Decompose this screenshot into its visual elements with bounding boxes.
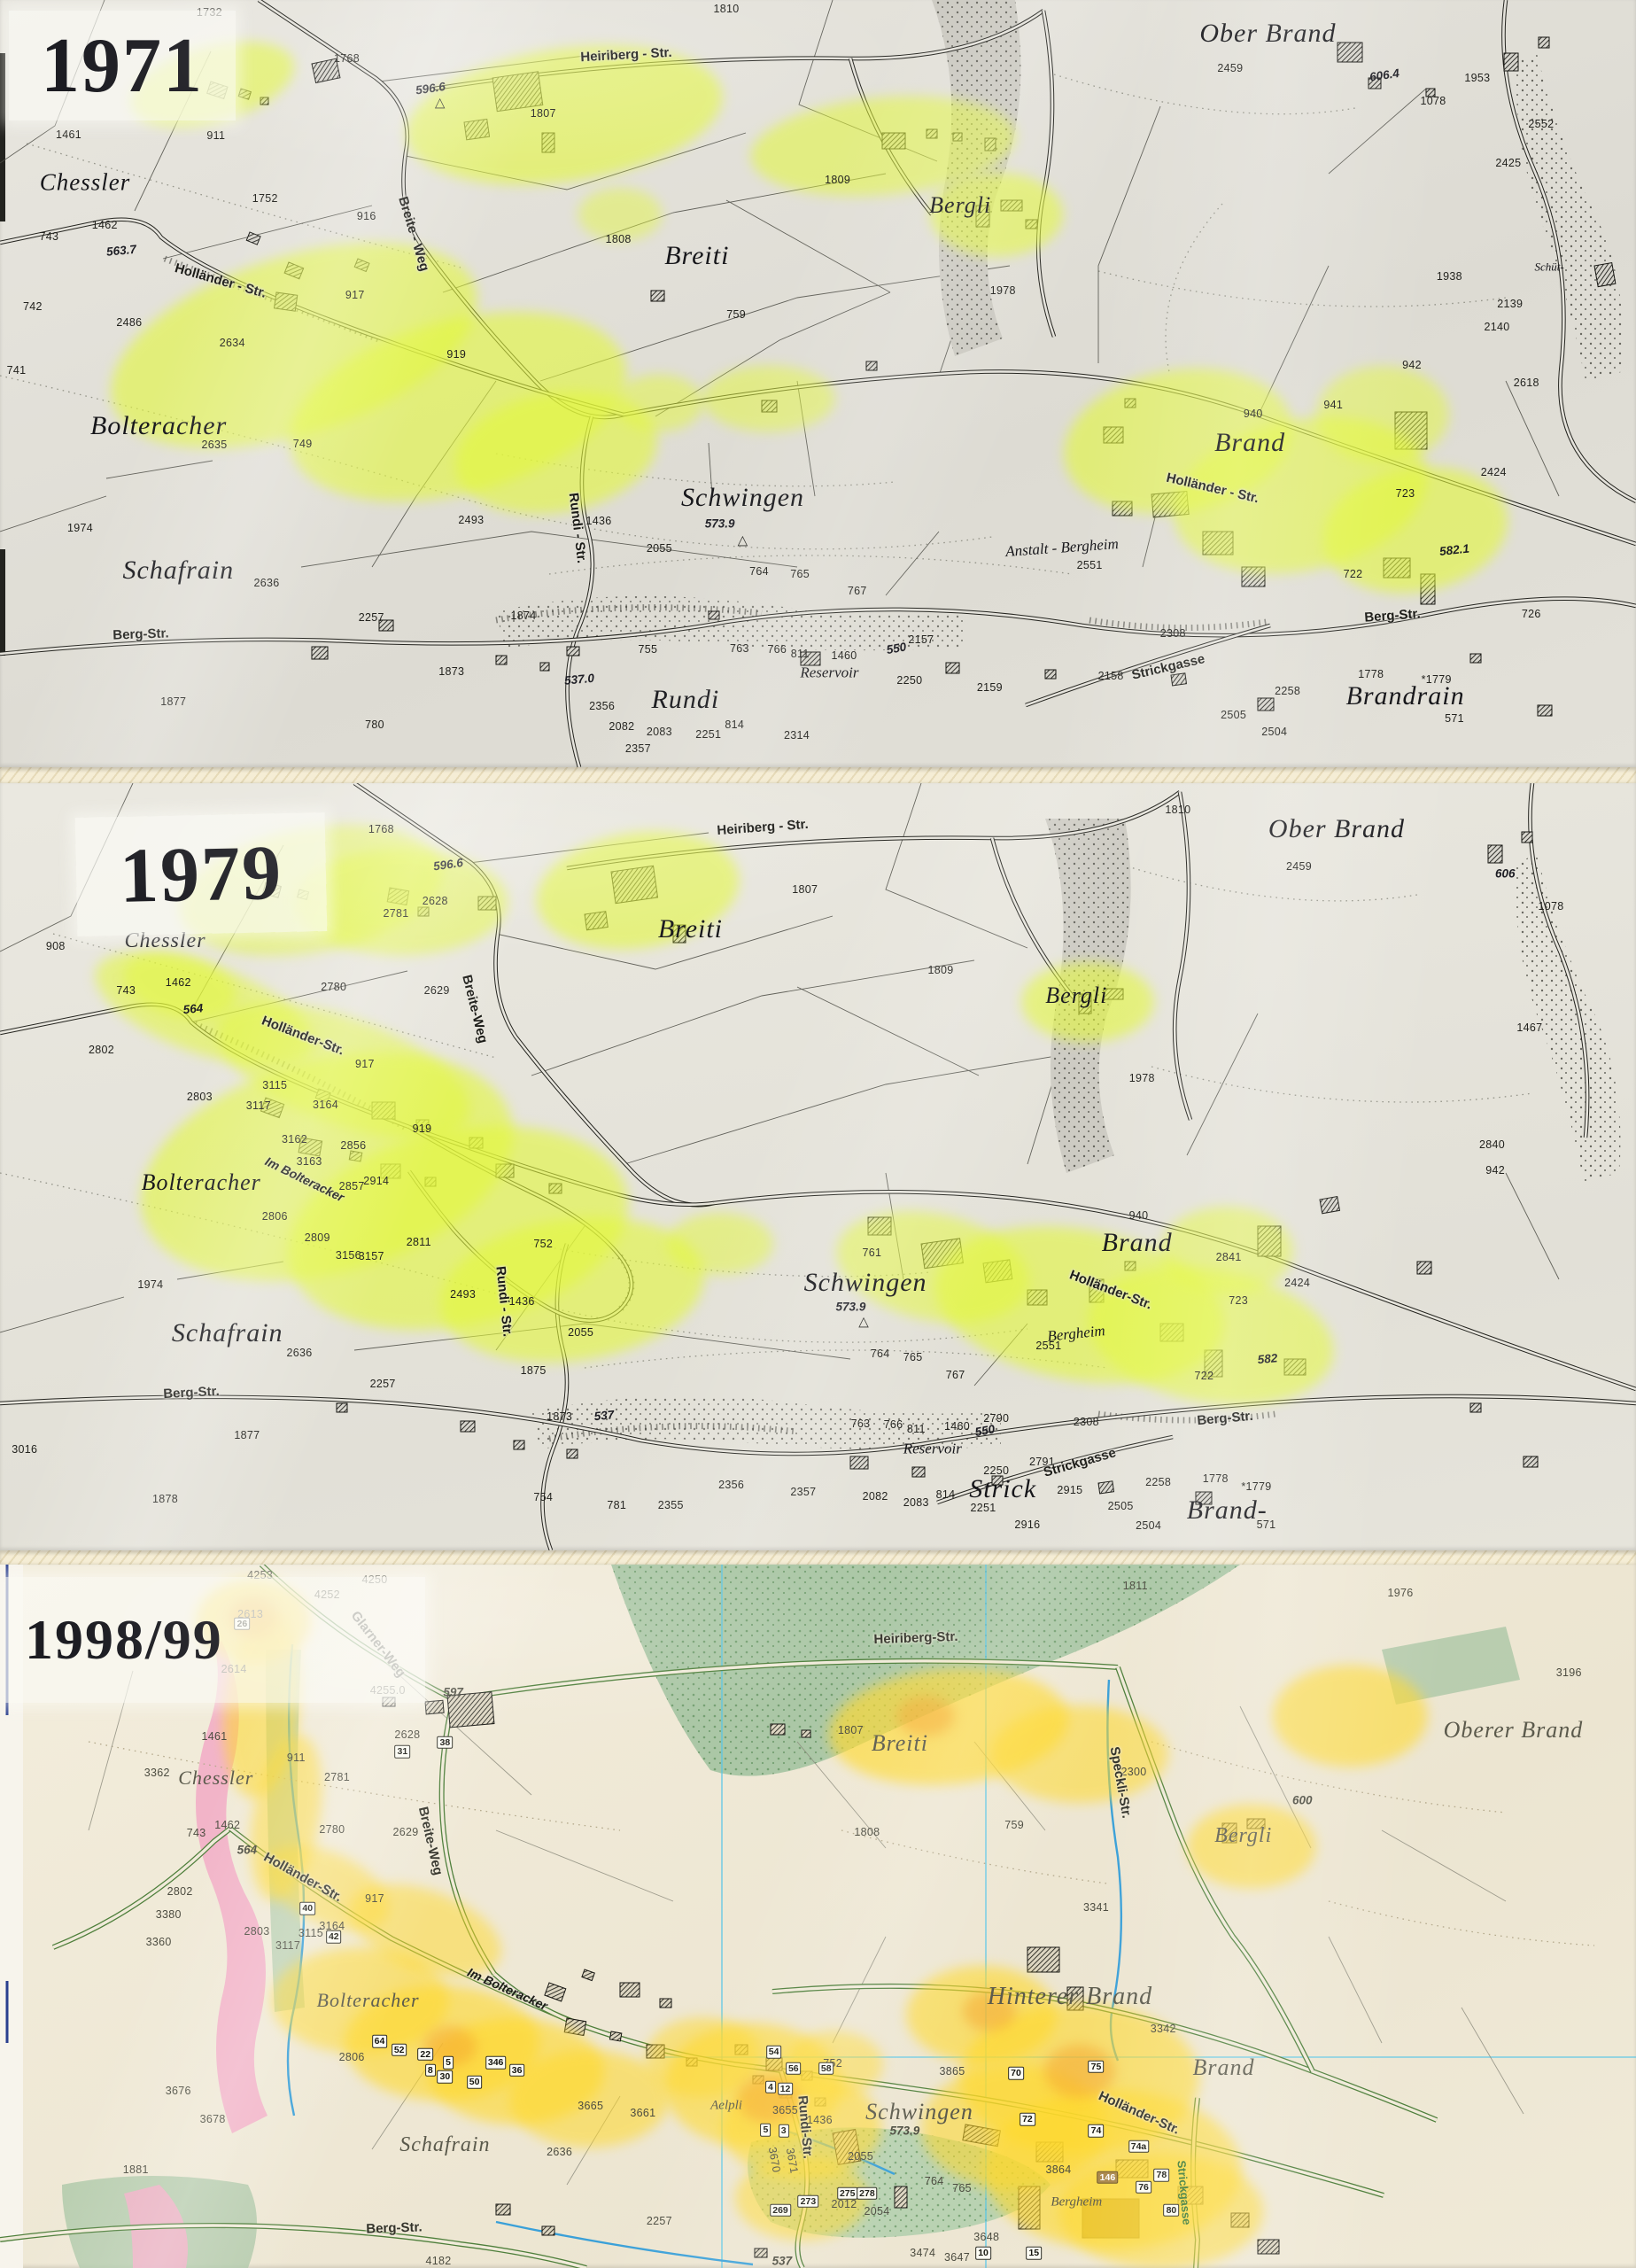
map-label: Im Bolteracker <box>465 1966 549 2012</box>
map-label: 917 <box>345 290 365 301</box>
map-label: 3865 <box>939 2065 965 2077</box>
map-label: Heiriberg-Str. <box>874 1630 958 1646</box>
map-label: 596.6 <box>432 857 463 873</box>
map-label: 2790 <box>983 1413 1009 1425</box>
map-label: 346 <box>485 2056 507 2070</box>
map-label: Brand- <box>1187 1497 1268 1524</box>
map-label: 1752 <box>252 193 278 205</box>
map-label: 3362 <box>144 1767 170 1779</box>
map-label: Aelpli <box>710 2099 742 2112</box>
map-label: 726 <box>1522 609 1541 620</box>
map-label: 2636 <box>547 2147 572 2158</box>
map-label: 15 <box>1026 2247 1042 2260</box>
map-label: 2054 <box>864 2206 889 2218</box>
map-label: 2356 <box>718 1480 744 1491</box>
map-label: 1461 <box>201 1730 227 1742</box>
map-label: 573.9 <box>889 2124 919 2137</box>
map-label: 8 <box>425 2064 436 2078</box>
map-label: 2055 <box>647 543 672 555</box>
map-label: 917 <box>365 1893 384 1905</box>
map-label: 1768 <box>368 824 394 835</box>
map-label: 941 <box>1323 400 1343 411</box>
map-label: 917 <box>355 1059 375 1070</box>
map-label: 2082 <box>609 721 634 733</box>
map-label: Bergli <box>929 194 991 217</box>
map-label: 1877 <box>234 1430 260 1441</box>
map-label: 2552 <box>1528 119 1554 130</box>
map-label: 2628 <box>423 896 448 907</box>
map-label: 2493 <box>458 515 484 526</box>
map-label: 1874 <box>511 610 537 622</box>
map-label: 573.9 <box>705 518 735 531</box>
map-label: 5 <box>760 2124 771 2137</box>
map-label: Holländer-Str. <box>261 1851 344 1905</box>
map-label: 3162 <box>282 1134 307 1146</box>
map-label: 942 <box>1485 1165 1505 1177</box>
map-label: 781 <box>607 1500 626 1511</box>
map-label: 4 <box>765 2081 776 2094</box>
map-label: 3474 <box>910 2248 935 2259</box>
map-label: 764 <box>925 2175 944 2186</box>
map-label: 1808 <box>606 234 632 245</box>
map-label: 2629 <box>424 985 450 997</box>
map-label: Bolteracher <box>142 1171 261 1194</box>
map-label: 2636 <box>286 1348 312 1359</box>
map-label: 2802 <box>167 1886 193 1898</box>
map-label: Breiti <box>872 1732 928 1755</box>
map-label: 765 <box>903 1352 923 1363</box>
map-label: 1778 <box>1358 669 1384 680</box>
map-label: 3117 <box>275 1939 300 1951</box>
map-label: 2486 <box>116 316 142 328</box>
map-label: 571 <box>1445 712 1464 724</box>
map-label: 56 <box>786 2062 802 2075</box>
map-label: 3380 <box>156 1909 182 1921</box>
map-label: Hinterer Brand <box>988 1984 1152 2009</box>
map-label: Berg-Str. <box>366 2220 423 2235</box>
map-label: 2809 <box>305 1231 330 1243</box>
map-label: *1779 <box>1241 1481 1271 1493</box>
map-label: Anstalt - Bergheim <box>1004 536 1119 559</box>
map-label: 58 <box>818 2062 834 2075</box>
map-label: 537 <box>593 1410 615 1423</box>
map-label: 1810 <box>1165 804 1190 816</box>
map-label: 3661 <box>630 2108 655 2119</box>
year-label-1971: 1971 <box>9 11 236 120</box>
map-label: 78 <box>1154 2169 1170 2182</box>
map-label: 550 <box>974 1423 996 1438</box>
map-label: 278 <box>857 2187 878 2201</box>
map-label: 22 <box>417 2047 433 2061</box>
map-label: 2629 <box>393 1826 419 1837</box>
map-label: 767 <box>946 1369 965 1380</box>
map-label: 74a <box>1128 2140 1150 2153</box>
map-label: Brandrain <box>1346 683 1465 710</box>
map-label: 1873 <box>547 1411 572 1423</box>
map-label: 2802 <box>89 1045 114 1056</box>
map-label: Breiti <box>664 243 729 269</box>
map-label: Brand <box>1102 1230 1173 1256</box>
map-label: 50 <box>467 2076 483 2089</box>
map-label: 759 <box>726 309 746 321</box>
map-label: 1976 <box>1388 1588 1414 1599</box>
map-label: 74 <box>1089 2124 1105 2138</box>
map-label: Holländer - Str. <box>1165 470 1260 505</box>
map-label: 2055 <box>568 1327 593 1339</box>
map-label: 1462 <box>92 219 118 230</box>
map-label: 2916 <box>1014 1519 1040 1531</box>
map-label: 743 <box>116 985 136 997</box>
map-label: 564 <box>237 1844 258 1856</box>
map-label: 3360 <box>146 1937 172 1948</box>
map-label: Speckli-Str. <box>1108 1746 1134 1820</box>
map-label: 1810 <box>714 4 740 15</box>
map-label: 2780 <box>319 1823 345 1835</box>
map-panel-1998-99: 4253425042522613262614Glarner-Weg4255.05… <box>0 1565 1636 2268</box>
map-label: 811 <box>907 1424 926 1435</box>
map-label: 600 <box>1292 1794 1313 1806</box>
map-label: Chessler <box>40 171 131 195</box>
map-label: 2251 <box>971 1502 996 1513</box>
map-label: Breite-Weg <box>416 1806 445 1876</box>
map-label: 1873 <box>438 666 464 678</box>
map-label: Ober Brand <box>1199 20 1336 47</box>
map-label: Schüt- <box>1534 260 1563 272</box>
map-label: 10 <box>975 2247 991 2260</box>
map-label: 2257 <box>359 612 384 624</box>
map-label: 2356 <box>589 700 615 711</box>
map-label: 2308 <box>1160 628 1186 640</box>
map-label: 1809 <box>928 965 954 976</box>
map-label: 2628 <box>394 1729 420 1741</box>
year-text: 1971 <box>41 21 204 111</box>
map-label: 3163 <box>297 1156 322 1168</box>
map-label: 40 <box>299 1902 315 1915</box>
map-label: 1875 <box>521 1365 547 1377</box>
map-label: 908 <box>46 940 66 951</box>
map-label: 1461 <box>56 128 81 140</box>
year-label-1979: 1979 <box>75 812 328 936</box>
map-label: 754 <box>533 1492 553 1503</box>
map-label: Brand <box>1214 430 1285 456</box>
map-label: 3676 <box>166 2085 191 2097</box>
map-label: Holländer - Str. <box>174 261 268 300</box>
map-panel-1979: 1768596.6Heiriberg - Str.1810Ober Brand2… <box>0 783 1636 1550</box>
map-label: 12 <box>778 2082 794 2095</box>
map-label: 780 <box>365 719 384 731</box>
map-label: 2806 <box>262 1211 288 1223</box>
map-label: Holländer-Str. <box>260 1014 345 1057</box>
map-label: 2781 <box>324 1772 350 1783</box>
map-label: Schwingen <box>681 485 804 511</box>
map-label: 1768 <box>334 53 360 65</box>
map-label: 3678 <box>200 2113 226 2124</box>
map-label: 1462 <box>214 1820 240 1831</box>
map-label: 2803 <box>187 1091 213 1103</box>
map-label: 1460 <box>944 1420 970 1432</box>
map-label: 31 <box>395 1745 411 1759</box>
map-label: 752 <box>533 1238 553 1249</box>
map-label: Bergli <box>1045 984 1107 1007</box>
map-label: 2083 <box>647 726 672 738</box>
map-label: 742 <box>23 301 43 313</box>
map-label: 3016 <box>12 1443 37 1455</box>
map-label: Holländer-Str. <box>1097 2089 1182 2137</box>
map-label: 2357 <box>625 743 651 755</box>
map-label: 80 <box>1164 2204 1180 2218</box>
map-label: Schwingen <box>865 2101 973 2124</box>
map-label: 550 <box>886 641 908 656</box>
map-label: 911 <box>287 1751 306 1763</box>
map-label: 1978 <box>1129 1072 1155 1084</box>
map-label: Schafrain <box>172 1320 283 1347</box>
year-text: 1979 <box>119 828 283 921</box>
map-label: 146 <box>1097 2171 1119 2184</box>
map-label: △ <box>858 1315 869 1328</box>
map-label: 3671 <box>784 2148 799 2175</box>
map-label: 722 <box>1344 569 1363 580</box>
map-label: Heiriberg - Str. <box>580 46 672 64</box>
map-label: 2082 <box>863 1491 888 1503</box>
map-label: 942 <box>1402 360 1422 371</box>
map-label: 76 <box>1136 2180 1151 2194</box>
map-label: 3341 <box>1083 1901 1109 1913</box>
map-label: 1436 <box>807 2115 833 2126</box>
map-label: 1811 <box>1123 1581 1148 1592</box>
map-label: 1460 <box>832 649 857 661</box>
map-label: 3648 <box>973 2232 999 2243</box>
map-label: 2355 <box>658 1500 684 1511</box>
map-label: 722 <box>1195 1371 1214 1382</box>
map-label: 765 <box>790 569 810 580</box>
map-label: 273 <box>798 2194 819 2208</box>
map-label: 3157 <box>359 1251 384 1262</box>
map-label: 2505 <box>1108 1501 1134 1512</box>
map-label: 537 <box>772 2255 793 2267</box>
map-label: 919 <box>413 1122 432 1134</box>
map-label: 741 <box>7 365 27 377</box>
map-label: 743 <box>187 1827 206 1838</box>
map-panel-1971: 17321810Ober Brand2459606.41953107825522… <box>0 0 1636 767</box>
map-label: Berg-Str. <box>1197 1410 1253 1427</box>
map-label: 2012 <box>832 2198 857 2210</box>
map-label: 1809 <box>825 174 850 185</box>
map-label: 2504 <box>1261 726 1287 738</box>
map-label: 2459 <box>1217 63 1243 74</box>
map-label: 38 <box>438 1736 454 1750</box>
map-label: 766 <box>767 643 787 655</box>
map-label: Schwingen <box>804 1270 927 1296</box>
map-label: Breite - Weg <box>396 195 431 273</box>
map-label: Berg-Str. <box>112 627 169 642</box>
map-label: 537.0 <box>563 672 594 687</box>
map-label: 1078 <box>1420 96 1446 107</box>
map-label: 764 <box>871 1348 890 1360</box>
map-label: 2505 <box>1221 710 1246 721</box>
map-label: 763 <box>730 643 749 655</box>
map-label: △ <box>738 533 748 547</box>
map-label: 2811 <box>407 1237 431 1248</box>
map-label: 2424 <box>1284 1278 1310 1289</box>
map-label: Reservoir <box>903 1441 962 1456</box>
map-label: 597 <box>443 1686 463 1698</box>
map-label: Strick <box>969 1476 1036 1503</box>
map-label: 3156 <box>336 1249 361 1261</box>
map-label: 1078 <box>1538 900 1563 912</box>
table-gap <box>0 767 1636 783</box>
map-label: 3670 <box>766 2146 781 2173</box>
map-label: 916 <box>357 211 376 222</box>
map-label: 919 <box>446 349 466 361</box>
map-label: 2459 <box>1286 861 1312 873</box>
map-label: Rundi <box>652 687 720 713</box>
map-label: 1807 <box>531 108 556 120</box>
map-label: 2803 <box>244 1925 269 1937</box>
map-label: 2781 <box>383 908 408 920</box>
map-label: 814 <box>725 719 744 731</box>
map-label: Breiti <box>658 916 723 943</box>
map-label: 606 <box>1495 867 1516 880</box>
map-label: 582 <box>1258 1352 1279 1365</box>
map-label: 1462 <box>166 977 191 989</box>
map-label: 2357 <box>790 1487 816 1498</box>
map-label: 749 <box>293 438 313 449</box>
map-label: 52 <box>392 2044 407 2057</box>
map-label: 3655 <box>772 2105 798 2117</box>
map-label: 2856 <box>340 1140 366 1152</box>
map-label: 2915 <box>1057 1484 1082 1495</box>
map-label: 743 <box>40 230 59 242</box>
map-label: Bolteracher <box>317 1991 420 2010</box>
map-label: 1974 <box>137 1279 163 1291</box>
map-label: Rundi-Str. <box>795 2095 814 2160</box>
map-label: Brand <box>1193 2056 1255 2079</box>
map-label: Oberer Brand <box>1444 1719 1584 1742</box>
map-label: 3665 <box>578 2101 603 2112</box>
map-label: 1808 <box>854 1826 880 1837</box>
map-label: Bolteracher <box>90 413 227 439</box>
map-label: 2251 <box>695 729 721 741</box>
map-label: 3647 <box>944 2252 970 2264</box>
map-label: 1878 <box>152 1494 178 1505</box>
map-label: Bergheim <box>1051 2196 1102 2210</box>
map-label: 767 <box>848 586 867 597</box>
map-label: 3117 <box>246 1099 271 1111</box>
table-gap <box>0 1550 1636 1565</box>
map-label: Chessler <box>178 1768 253 1788</box>
map-label: 571 <box>1257 1518 1276 1530</box>
map-label: 3864 <box>1045 2164 1071 2176</box>
map-label: 573.9 <box>836 1301 866 1313</box>
label-layer: 17321810Ober Brand2459606.41953107825522… <box>0 0 1636 767</box>
map-label: 2806 <box>339 2052 365 2063</box>
map-label: 2504 <box>1136 1520 1161 1532</box>
map-label: 3164 <box>313 1099 338 1111</box>
map-label: 72 <box>1020 2113 1035 2126</box>
map-label: 1978 <box>990 285 1016 297</box>
map-label: 2139 <box>1497 299 1523 310</box>
map-label: 755 <box>639 643 658 655</box>
map-label: 2840 <box>1479 1139 1505 1151</box>
map-label: 2308 <box>1074 1417 1099 1428</box>
map-label: 1807 <box>792 883 818 895</box>
map-label: 1436 <box>585 516 611 527</box>
map-label: 940 <box>1244 408 1263 420</box>
map-label: 2157 <box>908 634 934 646</box>
map-label: 36 <box>509 2064 525 2078</box>
year-text: 1998/99 <box>25 1607 223 1673</box>
map-label: 2634 <box>220 338 245 349</box>
map-label: 2551 <box>1035 1340 1061 1352</box>
map-label: 70 <box>1008 2067 1024 2080</box>
map-label: 911 <box>206 130 225 142</box>
map-label: Ober Brand <box>1268 816 1405 843</box>
map-label: 3115 <box>262 1080 287 1091</box>
map-label: 2159 <box>977 682 1003 694</box>
map-label: 814 <box>936 1489 956 1501</box>
map-label: Strickgasse <box>1130 652 1206 682</box>
map-label: 1467 <box>1516 1022 1542 1034</box>
map-label: Rundi - Str. <box>567 492 589 563</box>
map-label: 4182 <box>425 2256 451 2267</box>
map-label: 582.1 <box>1438 542 1469 557</box>
map-label: 3 <box>779 2124 789 2138</box>
map-label: △ <box>435 97 446 110</box>
map-label: 2258 <box>1145 1477 1171 1488</box>
map-label: Bergli <box>1214 1825 1272 1846</box>
map-label: 2257 <box>647 2216 672 2227</box>
map-label: 606.4 <box>1369 67 1400 83</box>
map-label: 940 <box>1129 1209 1149 1221</box>
map-label: Schafrain <box>399 2134 490 2155</box>
map-label: 64 <box>372 2035 388 2048</box>
map-label: 1436 <box>509 1295 535 1307</box>
map-label: 1953 <box>1464 73 1490 84</box>
map-label: 75 <box>1089 2061 1105 2074</box>
map-label: Heiriberg - Str. <box>717 818 809 837</box>
map-label: 2158 <box>1098 671 1124 682</box>
year-label-1998-99: 1998/99 <box>5 1577 425 1703</box>
map-label: Schafrain <box>122 557 234 584</box>
map-label: 759 <box>1004 1820 1024 1831</box>
map-label: 2841 <box>1216 1252 1242 1263</box>
map-label: Holländer-Str. <box>1068 1268 1154 1311</box>
map-label: 269 <box>770 2204 791 2218</box>
map-label: 2250 <box>896 675 922 687</box>
map-label: 1877 <box>160 696 186 708</box>
map-label: 2314 <box>784 730 810 742</box>
map-label: 765 <box>952 2183 972 2194</box>
map-label: 2636 <box>254 578 280 589</box>
map-label: 761 <box>863 1247 882 1259</box>
map-label: Strickgasse <box>1042 1446 1117 1480</box>
map-label: 3196 <box>1556 1667 1582 1679</box>
map-label: 2635 <box>201 439 227 451</box>
map-label: 563.7 <box>105 244 136 258</box>
map-label: 2914 <box>363 1176 389 1187</box>
map-label: 2618 <box>1514 377 1539 389</box>
map-label: 1807 <box>838 1724 864 1736</box>
map-label: 723 <box>1229 1294 1248 1306</box>
map-label: 30 <box>438 2070 454 2084</box>
map-label: 1881 <box>123 2164 149 2176</box>
map-label: 2083 <box>903 1497 929 1509</box>
map-label: 811 <box>791 649 810 660</box>
map-label: 2493 <box>450 1289 476 1301</box>
map-label: 2424 <box>1481 466 1507 478</box>
map-label: 3342 <box>1151 2023 1176 2035</box>
map-label: 2258 <box>1275 686 1300 697</box>
